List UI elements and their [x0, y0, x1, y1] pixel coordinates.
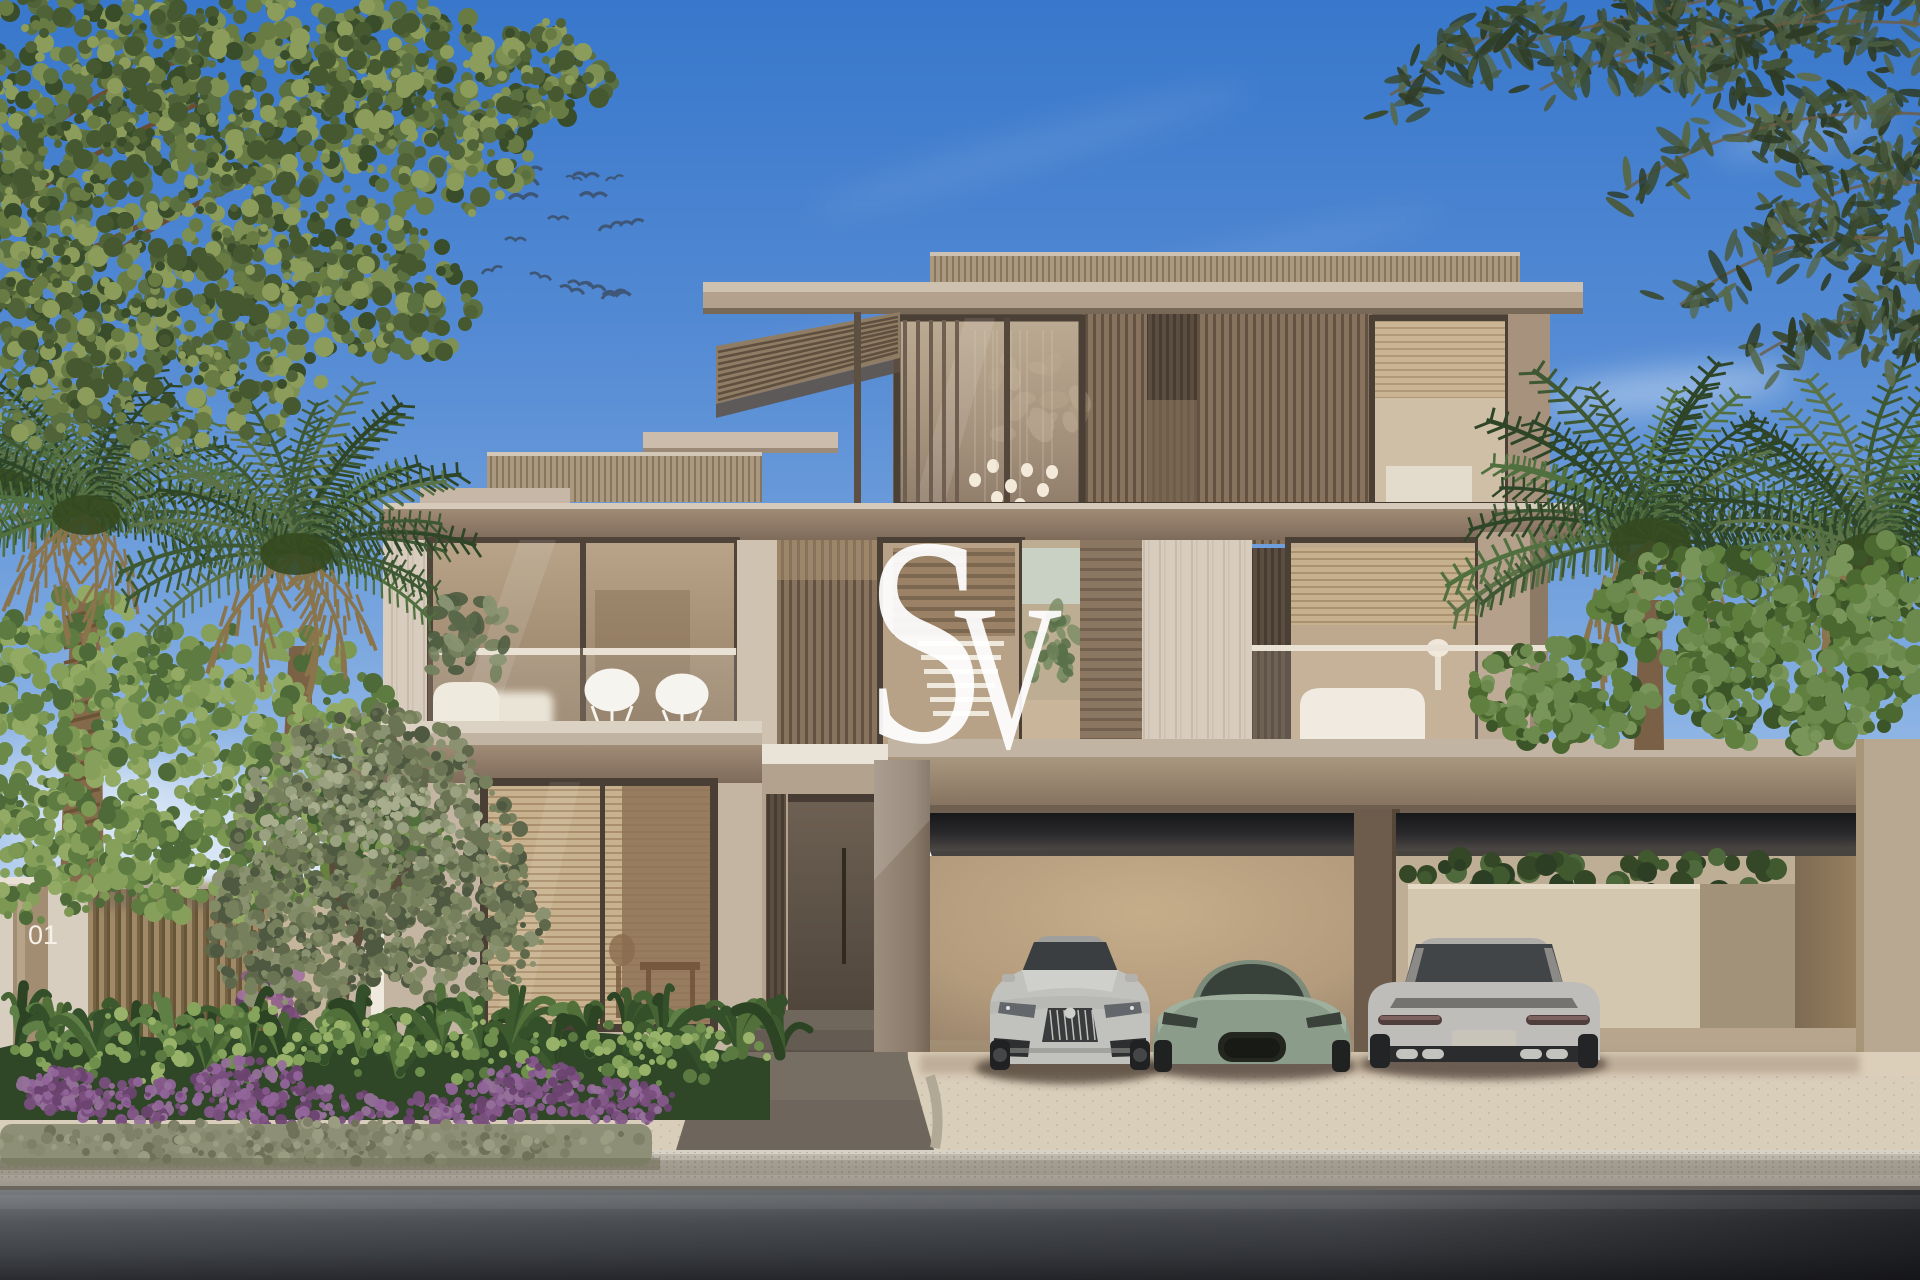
- svg-text:01: 01: [28, 920, 58, 950]
- svg-text:V: V: [953, 562, 1063, 792]
